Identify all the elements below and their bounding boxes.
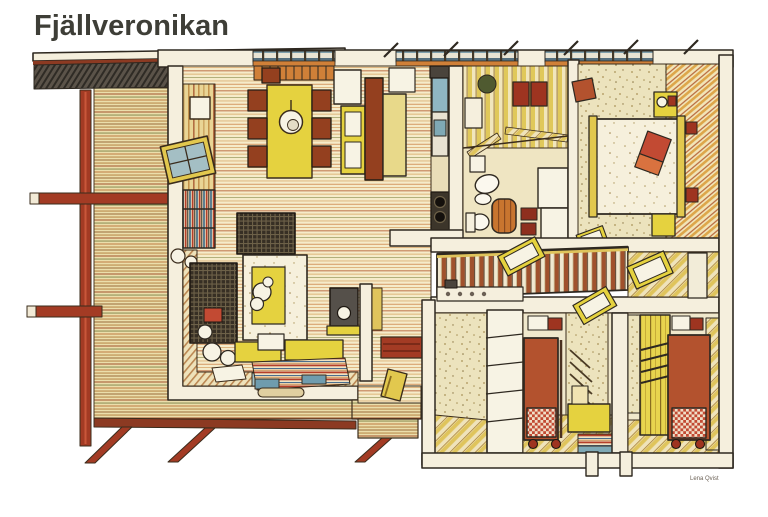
svg-text:Lena Qvist: Lena Qvist — [690, 476, 719, 482]
